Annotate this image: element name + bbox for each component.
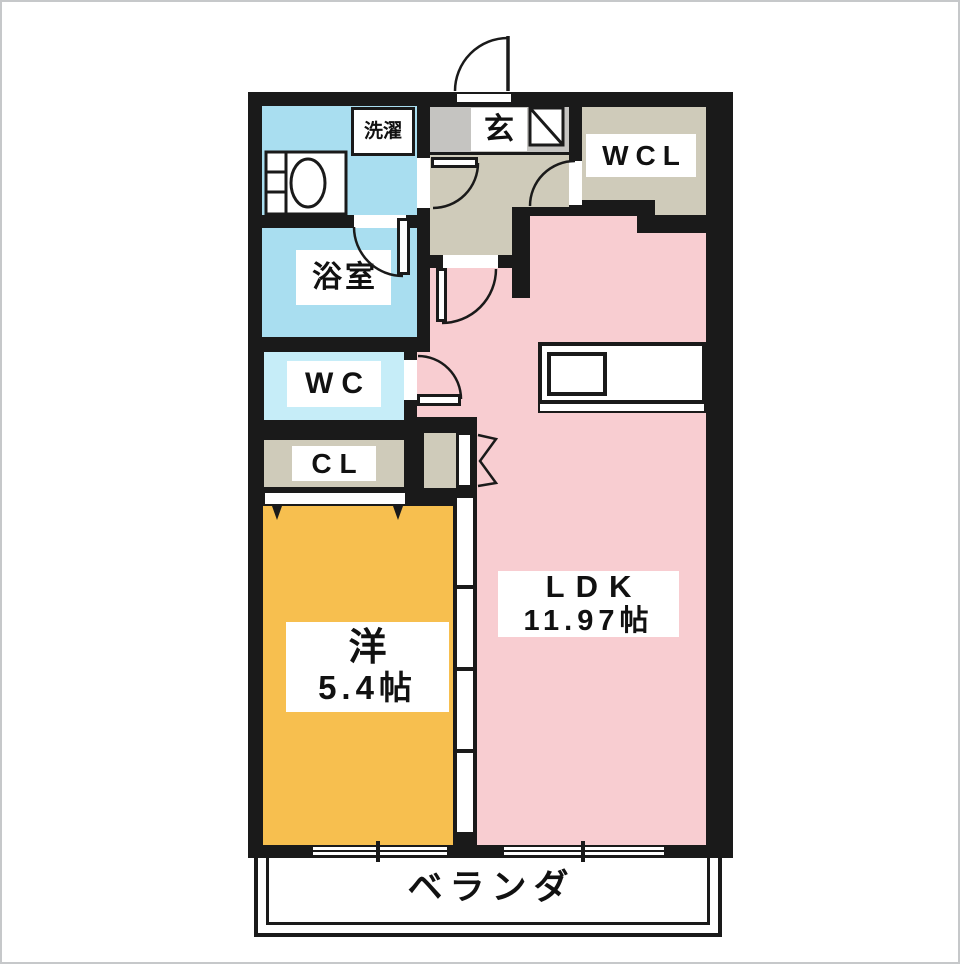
western-room-label: 洋 5.4帖: [286, 622, 449, 712]
floorplan-canvas: ベランダ 洗濯 玄 WCL 浴室 WC CL 洋 5.4帖 LDK 11.97帖: [0, 0, 960, 964]
entrance-door-arc: [455, 38, 508, 91]
door-opening-wcl: [569, 161, 582, 205]
partition-tick-2: [453, 667, 477, 671]
sliding-partition: [453, 498, 477, 832]
balcony-label: ベランダ: [266, 860, 710, 908]
laundry-label-text: 洗濯: [364, 121, 402, 142]
room-ldk-left-b: [417, 352, 530, 417]
ldk-label: LDK 11.97帖: [498, 571, 679, 637]
closet-door-track: [263, 491, 407, 506]
door-leaf-washroom: [431, 157, 478, 168]
door-opening-ldk: [443, 255, 498, 268]
bathroom-label: 浴室: [296, 250, 391, 305]
door-leaf-wc: [417, 394, 461, 406]
room-hallway-lower: [430, 155, 512, 255]
entrance-label: 玄: [471, 108, 527, 151]
entrance-label-text: 玄: [484, 113, 514, 147]
bathroom-label-text: 浴室: [309, 261, 378, 295]
partition-tick-3: [453, 749, 477, 753]
wc-label-text: WC: [297, 367, 371, 401]
wcl-label-text: WCL: [595, 140, 687, 171]
ldk-size: 11.97帖: [524, 605, 654, 637]
alcove-door-panel: [456, 432, 473, 488]
wall-step-wcl: [637, 200, 655, 233]
wc-label: WC: [287, 361, 381, 407]
western-room-name: 洋: [348, 627, 386, 670]
door-opening-washroom: [417, 158, 430, 208]
kitchen-sink: [547, 352, 607, 396]
kitchen-counter: [538, 342, 706, 404]
door-opening-wc: [404, 360, 417, 400]
wcl-label: WCL: [586, 134, 696, 177]
kitchen-counter-edge: [538, 404, 706, 413]
closet-label-text: CL: [303, 448, 364, 479]
room-ldk-main: [530, 233, 706, 845]
room-ldk-upper-notch: [530, 216, 637, 233]
western-room-size: 5.4帖: [318, 670, 417, 707]
entrance-door-sill: [455, 92, 513, 104]
door-leaf-ldk: [436, 268, 447, 322]
ldk-name: LDK: [535, 570, 643, 605]
partition-tick-1: [453, 585, 477, 589]
closet-label: CL: [292, 446, 376, 481]
washing-machine-box: 洗濯: [351, 107, 415, 156]
door-leaf-bathroom: [397, 218, 410, 275]
wall-under-wcl: [582, 200, 637, 216]
balcony-label-text: ベランダ: [400, 859, 575, 910]
partition-end-block: [453, 832, 477, 846]
room-alcove: [424, 433, 457, 488]
